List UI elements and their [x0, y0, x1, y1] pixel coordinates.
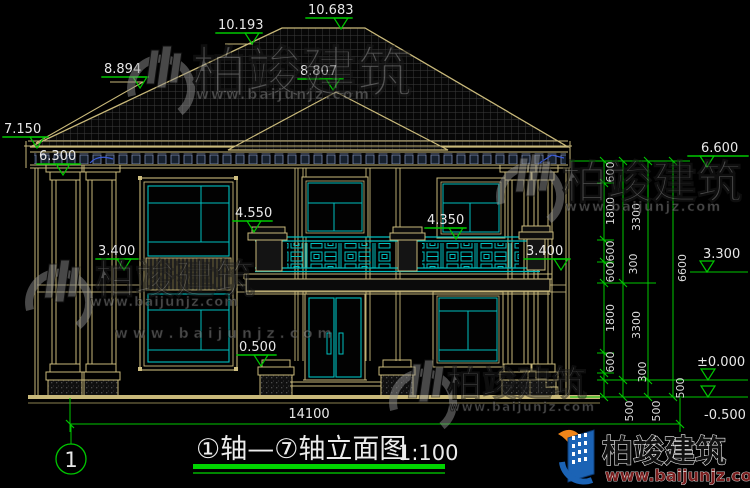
brand-logo-url: www.baijunjz.com — [605, 466, 750, 485]
balcony-slab — [244, 274, 552, 294]
marker-6300: 6.300 — [37, 149, 80, 175]
dim-label: 500 — [650, 401, 663, 422]
drawing-scale: 1:100 — [398, 441, 459, 465]
svg-text:-0.500: -0.500 — [704, 408, 746, 423]
brand-logo-icon — [558, 430, 594, 482]
watermark-url-spaced: w w w . b a i j u n j z . c o m — [115, 326, 332, 342]
dim-label: 600 — [604, 352, 617, 373]
svg-text:0.500: 0.500 — [239, 340, 276, 355]
dim-label: 300 — [636, 362, 649, 383]
porch-floor-lines — [290, 382, 381, 386]
railing-panel-left — [287, 243, 391, 268]
watermark-right: 柏竣建筑 www.baijunjz.com — [500, 154, 742, 220]
center-window — [302, 177, 368, 237]
marker-neg0500: -0.500 — [701, 386, 746, 423]
svg-text:3.400: 3.400 — [526, 244, 563, 259]
railing-panel-right — [422, 243, 519, 268]
axis-number: 1 — [64, 448, 77, 472]
title-underline-thick — [193, 464, 445, 469]
balcony — [244, 226, 553, 294]
watermark-bottom: 柏竣建筑 www.baijunjz.com — [393, 360, 595, 426]
svg-text:±0.000: ±0.000 — [697, 355, 745, 370]
dim-label: 500 — [674, 378, 687, 399]
brand-logo-name: 柏竣建筑 — [602, 434, 726, 470]
dim-label: 1800 — [604, 304, 617, 332]
watermark-url: www.baijunjz.com — [196, 87, 371, 103]
elevation-drawing: 600 1800 600 600 1800 600 500 3300 300 3… — [0, 0, 750, 488]
dim-label: 500 — [623, 401, 636, 422]
dentil-band — [34, 153, 566, 164]
svg-text:10.193: 10.193 — [218, 18, 264, 33]
right-lower-window — [433, 292, 503, 367]
svg-text:6.600: 6.600 — [701, 141, 738, 156]
drawing-title: ①轴—⑦轴立面图 — [196, 434, 406, 465]
brand-logo: 柏竣建筑 www.baijunjz.com — [558, 430, 750, 485]
watermark-brand: 柏竣建筑 — [447, 364, 587, 405]
svg-text:10.683: 10.683 — [308, 3, 354, 18]
marker-0000: ±0.000 — [697, 355, 745, 380]
watermark-midleft: 柏竣建筑 www.baijunjz.com w w w . b a i j u … — [29, 257, 332, 342]
dim-label: 3300 — [630, 311, 643, 339]
watermark-url: www.baijunjz.com — [90, 295, 239, 310]
marker-0500: 0.500 — [237, 340, 276, 366]
marker-3300: 3.300 — [700, 247, 740, 272]
svg-text:7.150: 7.150 — [4, 122, 41, 137]
watermark-url: www.baijunjz.com — [565, 200, 722, 215]
total-width-label: 14100 — [288, 407, 329, 422]
svg-text:4.350: 4.350 — [427, 213, 464, 228]
title-block: ①轴—⑦轴立面图 1:100 — [193, 434, 459, 473]
watermark-url: www.baijunjz.com — [449, 400, 596, 414]
svg-text:3.300: 3.300 — [703, 247, 740, 262]
marker-10683: 10.683 — [306, 3, 354, 29]
dim-label: 600 — [604, 241, 617, 262]
svg-text:6.300: 6.300 — [39, 149, 76, 164]
cad-elevation-screenshot: 600 1800 600 600 1800 600 500 3300 300 3… — [0, 0, 750, 488]
svg-text:4.550: 4.550 — [235, 206, 272, 221]
axis-bubble: 1 — [56, 424, 86, 474]
dim-label: 600 — [604, 262, 617, 283]
right-upper-window — [437, 178, 505, 238]
dim-label: 300 — [627, 254, 640, 275]
dim-label: 6600 — [676, 254, 689, 282]
